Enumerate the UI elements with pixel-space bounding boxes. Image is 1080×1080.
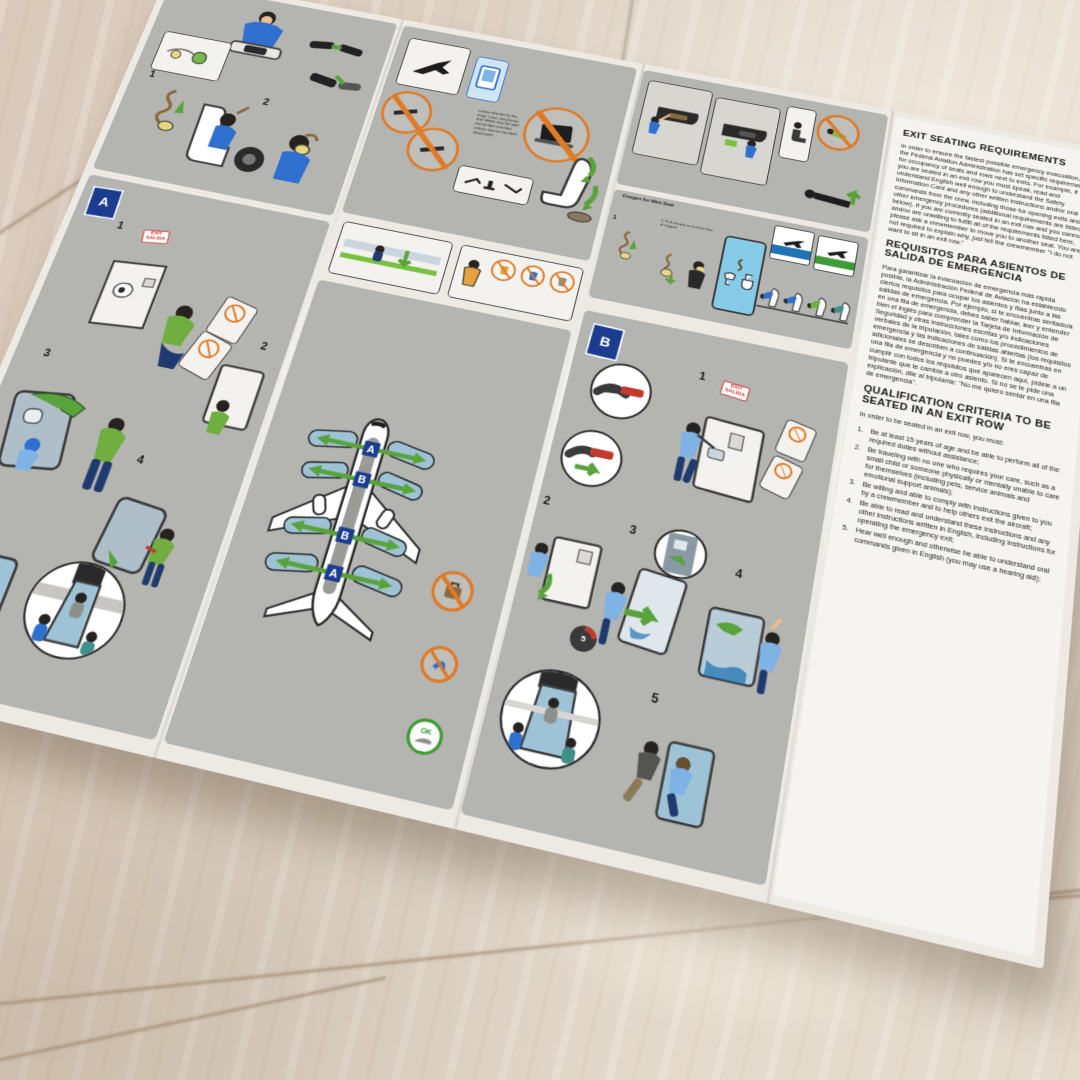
landing-land-icon bbox=[813, 235, 860, 277]
bin-photo-2 bbox=[699, 97, 781, 187]
device-usage-note: Unless directed by the Flight Crew, cell… bbox=[472, 109, 524, 142]
oxygen-mint-step-caption: 2. Pull sharply to start the flow of oxy… bbox=[660, 218, 717, 237]
no-recline-icon bbox=[814, 112, 862, 154]
flat-shoe-icon bbox=[413, 734, 435, 746]
high-heel-icon bbox=[428, 653, 452, 676]
cigarette-icon bbox=[413, 133, 453, 166]
no-inflate-vest-icon bbox=[547, 269, 577, 295]
no-open-icon bbox=[771, 460, 795, 482]
airplane-silhouette-icon bbox=[402, 45, 464, 89]
plane-over-water-icon bbox=[770, 226, 815, 266]
step-number: 4 bbox=[734, 567, 743, 580]
oxygen-mask-drop-icon bbox=[608, 213, 646, 278]
seated-icon-card bbox=[778, 106, 817, 163]
step-number: 3 bbox=[628, 523, 637, 536]
plane-over-land-icon bbox=[814, 236, 858, 276]
exit-a-badge: A bbox=[84, 186, 125, 220]
tray-table-icons bbox=[459, 170, 528, 200]
vest-icon bbox=[525, 270, 541, 284]
no-inflate-vest-icon bbox=[518, 264, 548, 290]
step-number: 5 bbox=[650, 692, 660, 706]
lie-flat-brace-icon bbox=[799, 168, 867, 222]
step-number: 2 bbox=[542, 495, 551, 508]
vest-donning-icon bbox=[452, 250, 491, 298]
exit-salida-sign: EXIT SALIDA bbox=[141, 229, 170, 244]
step-number: 2 bbox=[261, 97, 270, 107]
no-open-icon bbox=[220, 301, 249, 326]
magnifier-handle-2 bbox=[554, 424, 628, 493]
seatbelt-buckle-icon bbox=[299, 62, 370, 103]
floor-path-card bbox=[327, 220, 454, 295]
vest-icon bbox=[554, 275, 570, 289]
no-high-heels-icon bbox=[416, 642, 462, 686]
ok-flat-shoes-icon: OK bbox=[403, 715, 447, 758]
no-inflate-vest-icon bbox=[489, 258, 519, 284]
illustration-b-step5-jump bbox=[607, 705, 723, 858]
tablet-icon bbox=[472, 62, 504, 97]
prohibition-card bbox=[758, 454, 805, 501]
open-bin-illustration bbox=[704, 102, 777, 181]
no-luggage-icon bbox=[427, 567, 479, 616]
step-number: 1 bbox=[148, 69, 157, 79]
exit-b-badge: B bbox=[584, 322, 625, 362]
item-number: 5. bbox=[840, 524, 854, 544]
item-number: 4. bbox=[843, 497, 858, 525]
floor-path-lighting bbox=[333, 225, 447, 290]
open-bin-illustration bbox=[636, 85, 710, 161]
photo-scene: 1 2 A 1 bbox=[0, 0, 1080, 1080]
step-number: 2 bbox=[259, 341, 269, 352]
step-number: 1 bbox=[698, 370, 707, 382]
step-number: 3 bbox=[42, 347, 52, 359]
no-open-icon bbox=[786, 424, 809, 445]
device-card bbox=[465, 56, 510, 104]
reclined-person-icon bbox=[823, 123, 852, 142]
handle-grip-detail bbox=[587, 361, 655, 423]
magnifier-slide-evacuation bbox=[490, 660, 610, 780]
step-number: 4 bbox=[135, 453, 145, 465]
illustration-b-step4-push-out bbox=[687, 578, 797, 726]
handle-pull-detail bbox=[557, 426, 626, 490]
vest-icon bbox=[496, 264, 512, 277]
exit-a-letter: A bbox=[97, 195, 111, 210]
exit-salida-sign: EXIT SALIDA bbox=[720, 381, 751, 402]
item-number: 3. bbox=[847, 478, 861, 497]
luggage-icon bbox=[439, 578, 466, 604]
tray-table-card bbox=[452, 164, 535, 206]
magnifier-handle-1 bbox=[585, 358, 657, 424]
illustration-b-step1-door bbox=[660, 392, 774, 516]
cigarette-icon bbox=[387, 96, 426, 128]
slide-evacuation-detail bbox=[492, 663, 607, 777]
bin-photo-1 bbox=[631, 80, 714, 166]
exit-sign-text: SALIDA bbox=[145, 235, 165, 241]
ditching-water-icon bbox=[769, 225, 816, 267]
oxygen-mint-title: Oxygen for Mint Seat bbox=[622, 194, 674, 209]
aircraft-mode-card bbox=[395, 38, 472, 96]
step-number: 1 bbox=[116, 220, 126, 231]
item-number: 1. bbox=[855, 425, 868, 444]
exit-b-letter: B bbox=[598, 334, 612, 351]
seated-person-icon bbox=[783, 112, 811, 156]
oxygen-bottle-icon bbox=[157, 36, 225, 76]
oxygen-mint-block: Oxygen for Mint Seat 1 2. Pull sharply t… bbox=[594, 193, 725, 316]
step-number: 1 bbox=[612, 215, 617, 221]
